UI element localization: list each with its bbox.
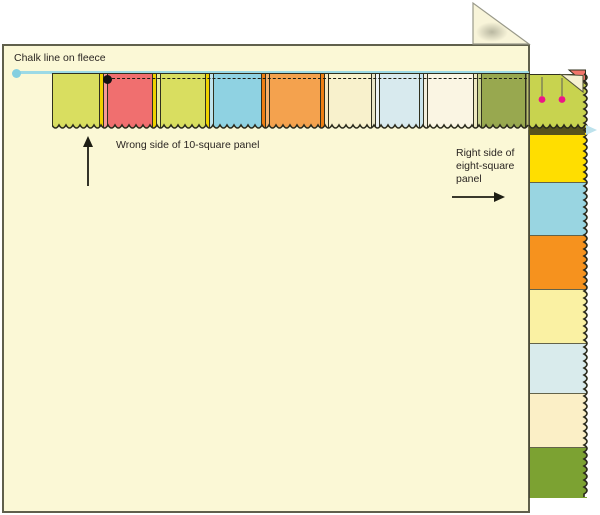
right-arrow	[448, 189, 508, 205]
diagram-canvas: Chalk line on fleece Wrong side of 10-sq…	[0, 0, 600, 515]
chalk-line-label: Chalk line on fleece	[14, 52, 106, 65]
panel-top-edge	[52, 73, 530, 75]
right-side-label: Right side of eight-square panel	[456, 147, 520, 186]
wrong-side-label: Wrong side of 10-square panel	[116, 139, 259, 152]
stitch-line	[107, 78, 527, 79]
stitch-start-dot	[103, 75, 112, 84]
small-blue-arrow-icon	[586, 125, 597, 135]
pin-head	[559, 96, 566, 103]
chalk-line-dot	[12, 69, 21, 78]
pin-head	[539, 96, 546, 103]
fleece-folded-corner	[455, 0, 535, 46]
pinked-edge-bottom	[52, 121, 529, 135]
up-arrow	[80, 134, 96, 188]
